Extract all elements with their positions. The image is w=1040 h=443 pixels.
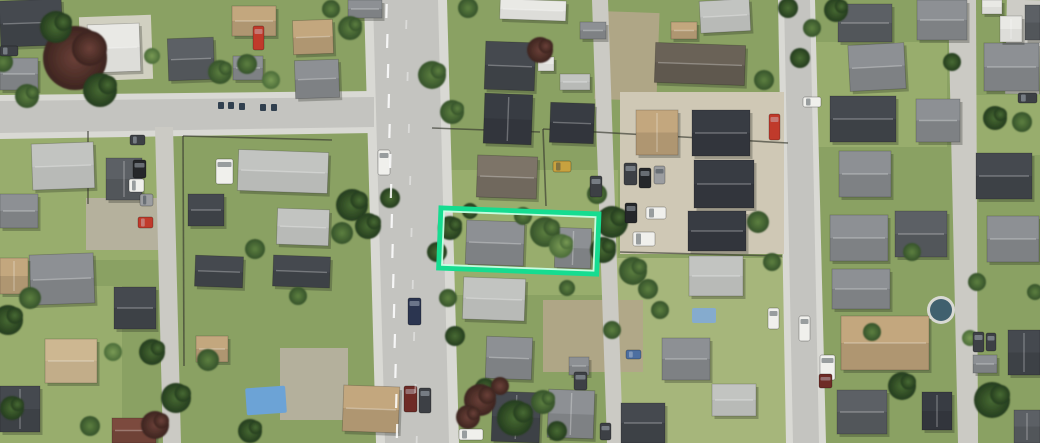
vehicle [769,114,780,140]
building [688,211,749,254]
tree [208,60,232,84]
vehicle [253,26,264,50]
tree [15,84,39,108]
tree [1012,112,1032,132]
tree [0,396,24,420]
vehicle [768,308,779,329]
tree [322,0,340,18]
vehicle [553,161,571,172]
tree [161,383,191,413]
tree [747,211,769,233]
building [654,42,748,88]
building [837,390,890,437]
vehicle [986,333,996,351]
building [114,287,159,332]
lane-marking [416,436,418,443]
building [194,255,245,291]
vehicle [216,159,233,184]
trash-bin [239,103,245,110]
building [31,142,97,193]
tree [262,71,280,89]
tree [790,48,810,68]
building [1025,5,1040,43]
vehicle [654,166,665,184]
lane-marking [392,274,395,288]
building [580,22,609,42]
vehicle [130,135,145,145]
lane-marking [393,334,396,348]
lane-marking [405,20,407,29]
tree [440,100,464,124]
trash-bin [218,102,224,109]
tree [603,321,621,339]
tree [531,390,555,414]
building [692,110,753,159]
lane-marking [391,244,394,258]
tree [331,222,353,244]
satellite-imagery [0,0,1040,443]
building [712,384,759,419]
lane-marking [389,154,392,168]
tree [141,411,169,439]
blue-tarp [692,308,716,323]
tree [80,416,100,436]
vehicle [138,217,153,228]
tree [139,339,165,365]
blue-tarp [245,386,287,416]
tree [803,19,821,37]
building [560,74,593,93]
building [830,215,891,264]
tree [289,287,307,305]
tree [355,213,381,239]
tree [40,11,72,43]
tree [638,279,658,299]
tree [983,106,1007,130]
tree [943,53,961,71]
tree [104,343,122,361]
lane-marking [408,124,410,133]
tree [338,16,362,40]
tree [888,372,916,400]
round-pool [930,299,952,321]
vehicle [803,97,821,107]
building [294,59,342,101]
lane-marking [410,228,412,237]
vehicle [973,332,984,352]
building [45,339,100,386]
building [237,149,331,196]
aerial-map-view[interactable] [0,0,1040,443]
vehicle [639,168,651,188]
building [621,403,668,443]
lane-marking [390,214,393,228]
building [973,355,1000,376]
vehicle [0,46,18,56]
tree [549,234,573,258]
vehicle [378,150,390,175]
lane-marking [386,34,389,48]
tree [144,48,160,64]
tree [237,54,257,74]
building [830,96,899,145]
vehicle [624,163,637,185]
vehicle [625,203,637,223]
building [636,110,681,158]
building [483,93,535,148]
building [1008,330,1040,378]
trash-bin [260,104,266,111]
tree [245,239,265,259]
building [987,216,1040,265]
vehicle [140,194,153,206]
building [916,99,963,145]
building [917,0,970,43]
building [662,338,713,383]
building [699,0,753,36]
lane-marking [409,176,411,185]
vehicle [819,374,832,388]
tree [456,405,480,429]
building [0,194,41,231]
tree [559,280,575,296]
tree [19,287,41,309]
lane-marking [387,64,390,78]
tree [974,382,1010,418]
vehicle [419,388,431,413]
lane-marking [390,184,393,198]
vehicle [129,179,144,192]
lane-marking [388,124,391,138]
building [694,160,757,211]
building [500,0,569,24]
building [832,269,893,312]
tree [863,323,881,341]
ground-patch [280,348,348,420]
vehicle [590,176,602,197]
tree [547,421,567,441]
building [276,208,332,249]
tree [439,289,457,307]
lane-marking [387,94,390,108]
tree [903,243,921,261]
vehicle [408,298,421,325]
trash-bin [228,102,234,109]
building [476,155,540,202]
building [272,255,332,291]
building [839,151,894,200]
vehicle [633,232,655,246]
lane-marking [412,280,414,289]
west-street [0,97,374,133]
tree [83,73,117,107]
tree [651,301,669,319]
tree [527,37,553,63]
building [549,102,597,147]
lane-marking [394,364,397,378]
building [1014,410,1040,443]
building [465,220,527,269]
building [922,392,955,433]
vehicle [1018,93,1037,103]
ground-patch [543,300,643,372]
lane-marking [413,332,415,341]
lane-marking [395,394,398,408]
vehicle [574,372,587,390]
lane-marking [407,72,409,81]
building [982,0,1005,17]
lane-marking [385,4,388,18]
building [292,19,336,57]
building [485,336,535,383]
tree [491,377,509,395]
tree [968,273,986,291]
vehicle [600,423,611,440]
vehicle [626,350,641,359]
tree [418,61,446,89]
lane-marking [393,304,396,318]
lane-marking [396,424,399,438]
building [188,194,227,229]
building [841,316,932,373]
building [984,43,1040,94]
building [976,153,1035,202]
fence-line [183,136,184,366]
building [462,277,528,324]
tree [238,419,262,443]
building [689,256,746,299]
lane-marking [414,384,416,393]
tree [197,349,219,371]
tree [754,70,774,90]
vehicle [646,207,666,219]
trash-bin [271,104,277,111]
building [848,43,909,95]
vehicle [459,429,483,440]
tree [763,253,781,271]
building [1000,16,1025,45]
tree [445,326,465,346]
vehicle [799,316,810,341]
building [342,385,402,436]
tree [497,400,533,436]
vehicle [133,160,146,178]
building [671,22,700,42]
